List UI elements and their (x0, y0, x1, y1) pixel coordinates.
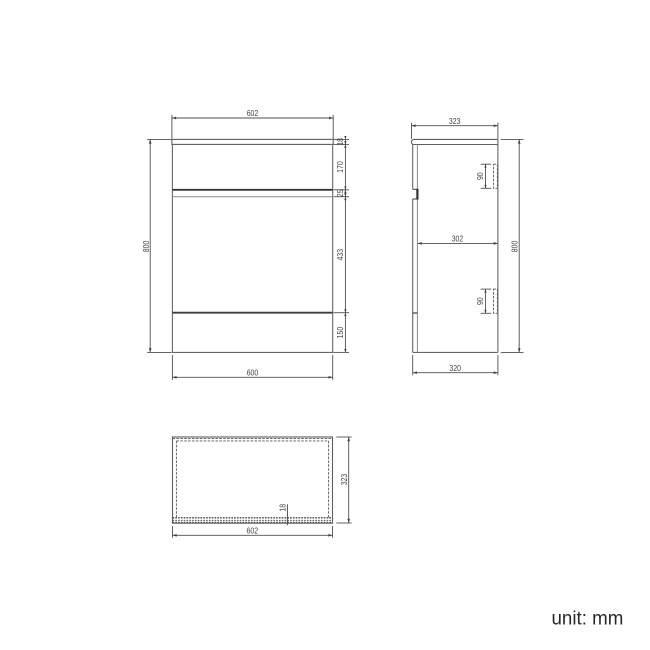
svg-text:18: 18 (336, 138, 345, 146)
svg-text:320: 320 (449, 364, 461, 373)
svg-text:170: 170 (336, 161, 345, 173)
svg-text:150: 150 (336, 326, 345, 338)
svg-text:800: 800 (511, 240, 520, 252)
svg-text:323: 323 (340, 473, 349, 485)
svg-text:302: 302 (452, 234, 464, 243)
svg-text:18: 18 (279, 503, 288, 511)
svg-text:800: 800 (142, 240, 151, 252)
svg-text:323: 323 (449, 117, 461, 126)
svg-text:433: 433 (336, 248, 345, 260)
svg-text:90: 90 (476, 297, 485, 305)
svg-text:602: 602 (247, 527, 259, 536)
svg-text:25: 25 (336, 189, 345, 197)
svg-text:600: 600 (247, 369, 259, 378)
svg-text:602: 602 (247, 109, 259, 118)
svg-text:90: 90 (476, 172, 485, 180)
svg-text:unit: mm: unit: mm (552, 608, 624, 630)
